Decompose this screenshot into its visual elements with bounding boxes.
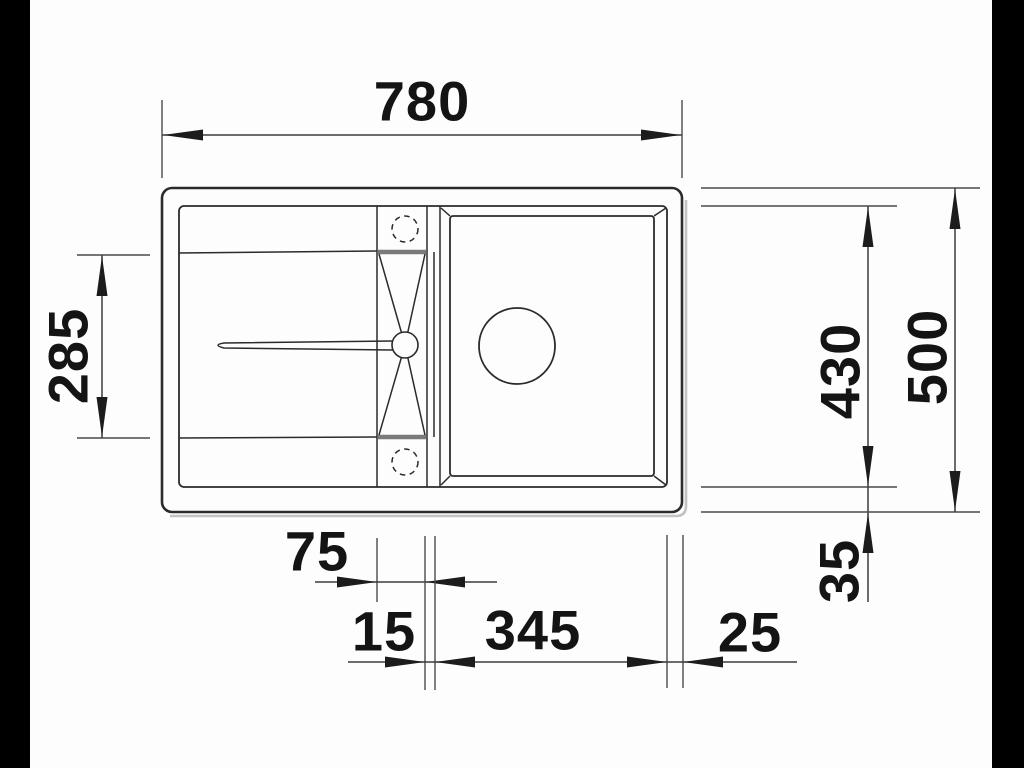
dimension-overall-width: 780 — [162, 70, 682, 179]
sink-shadow — [170, 200, 686, 516]
dimension-tap-ledge: 75 — [285, 520, 497, 603]
drain-hole — [479, 308, 555, 384]
dim-label-35: 35 — [808, 539, 871, 603]
dim-label-285: 285 — [37, 308, 100, 404]
dim-label-430: 430 — [809, 323, 872, 419]
drain-groove — [218, 341, 393, 350]
dimension-drainboard-depth: 285 — [37, 255, 151, 438]
tap-hole-bottom — [392, 449, 418, 475]
bowl — [440, 206, 666, 487]
dimension-bottom-margin: 35 — [808, 513, 874, 603]
dim-label-345: 345 — [485, 599, 581, 662]
sink-body — [162, 188, 686, 516]
bowl-basin — [450, 216, 654, 476]
screenshot-stage: 780 285 430 35 — [0, 0, 1024, 768]
sink-inner-rim — [179, 206, 667, 487]
dim-label-780: 780 — [374, 70, 470, 133]
dim-label-500: 500 — [896, 309, 959, 405]
dim-label-25: 25 — [718, 601, 782, 664]
strip-knob — [392, 332, 418, 358]
dim-label-15: 15 — [352, 600, 416, 663]
tap-hole-top — [392, 216, 418, 242]
drainboard — [179, 251, 393, 438]
sink-technical-drawing: 780 285 430 35 — [0, 0, 1024, 768]
tap-strip — [377, 206, 434, 487]
dim-label-75: 75 — [285, 520, 349, 583]
dimension-chain-bottom: 15 345 25 — [348, 535, 797, 690]
sink-outer-rim — [162, 188, 682, 512]
